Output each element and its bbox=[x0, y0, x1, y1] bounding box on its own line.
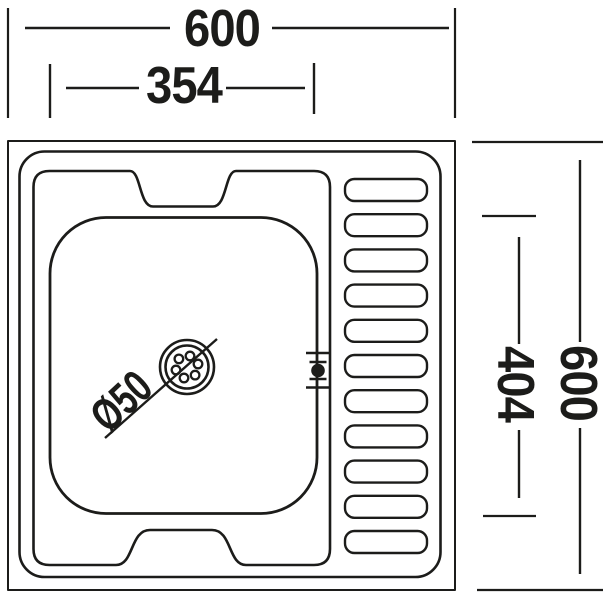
sink-spec-drawing: 600 354 600 404 bbox=[0, 0, 607, 600]
overall-width-dimension: 600 bbox=[8, 0, 455, 118]
drainboard-ribs bbox=[345, 179, 427, 553]
overflow-dot bbox=[311, 364, 325, 378]
drainboard-rib bbox=[345, 179, 427, 201]
sink-body bbox=[8, 141, 455, 590]
sink-outer-edge bbox=[8, 141, 455, 590]
drainboard-rib bbox=[345, 461, 427, 483]
drainboard-rib bbox=[345, 531, 427, 553]
bowl-height-dimension: 404 bbox=[482, 216, 544, 516]
drain-hole bbox=[172, 366, 181, 375]
drainboard-rib bbox=[345, 496, 427, 518]
drainboard-rib bbox=[345, 285, 427, 307]
drain-hole bbox=[180, 374, 189, 383]
drainboard-rib bbox=[345, 214, 427, 236]
drain-hole bbox=[191, 371, 200, 380]
drainboard-rib bbox=[345, 249, 427, 271]
drain-hole bbox=[186, 352, 195, 361]
drain-hole bbox=[194, 360, 203, 369]
drain-hole bbox=[175, 355, 184, 364]
overall-width-label: 600 bbox=[184, 0, 260, 58]
drainboard-rib bbox=[345, 355, 427, 377]
sink-bowl bbox=[50, 218, 317, 514]
bowl-width-label: 354 bbox=[146, 57, 223, 115]
overall-height-label: 600 bbox=[549, 345, 607, 421]
drain-diameter-label: Ø50 bbox=[80, 360, 162, 442]
sink-drawing-svg: 600 354 600 404 bbox=[0, 0, 607, 600]
bowl-height-label: 404 bbox=[486, 346, 544, 423]
drainboard-rib bbox=[345, 390, 427, 412]
bowl-width-dimension: 354 bbox=[50, 57, 314, 118]
drain-icon: Ø50 bbox=[80, 339, 217, 442]
drainboard-rib bbox=[345, 425, 427, 447]
drainboard-rib bbox=[345, 320, 427, 342]
